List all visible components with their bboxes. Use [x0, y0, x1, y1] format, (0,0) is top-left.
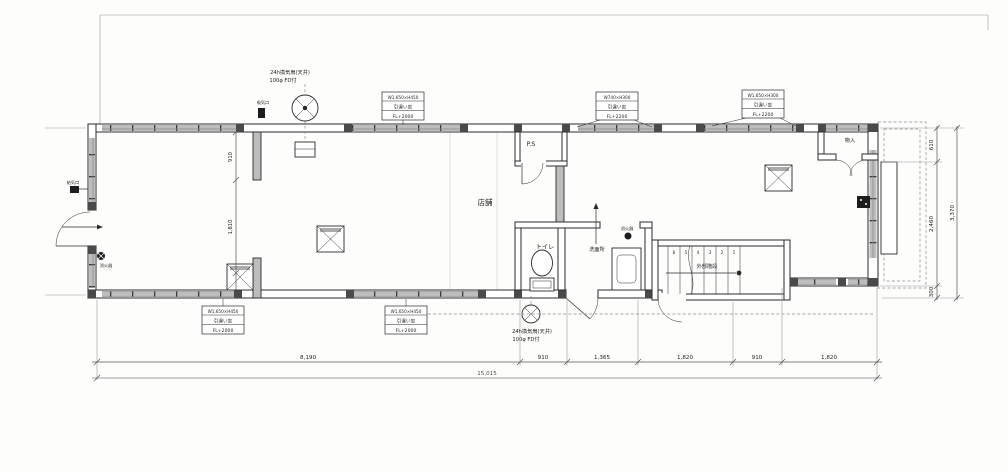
- entry-arrow-icon: [593, 203, 598, 209]
- fire-extinguisher-icon: [625, 233, 632, 240]
- fire-extinguisher-label: 消火器: [621, 225, 634, 232]
- wl-type: 引違い窓: [608, 104, 627, 111]
- wl-fl: FL+2200: [753, 112, 774, 118]
- stair-step-4: 4: [697, 250, 700, 255]
- window-top-5: [826, 125, 870, 131]
- dim-910b: 910: [752, 355, 763, 361]
- entry-door: [56, 212, 103, 246]
- fan-bottom-note-2: 100φ FD付: [512, 335, 539, 343]
- ceiling-fan-top: 24h換気扇(天井) 100φ FD付: [269, 68, 318, 157]
- dim-8190: 8,190: [300, 355, 316, 361]
- dim-1820a: 1,820: [677, 355, 693, 361]
- window-bottom-1: [102, 291, 234, 297]
- stair-step-5: 5: [685, 250, 688, 255]
- toilet-fixture: [532, 250, 553, 276]
- washroom-label: 洗面所: [589, 245, 605, 253]
- window-label-top-center: W1,650×H450 引違い窓 FL+2000: [382, 92, 424, 125]
- fan-top-note-2: 100φ FD付: [269, 76, 296, 84]
- window-top-2: [352, 125, 460, 131]
- stair-step-3: 3: [709, 250, 712, 255]
- supply-vent-label: 給気口: [67, 179, 80, 186]
- dim-1810-interior: 1,810: [228, 220, 234, 235]
- left-wall: [88, 124, 96, 298]
- bottom-wall: [88, 290, 662, 298]
- closet-label: 物入: [845, 136, 855, 144]
- stair-step-6: 6: [673, 250, 676, 255]
- washroom-exterior-door: [566, 298, 598, 319]
- intake-vent-marker: 吸気口: [257, 99, 270, 118]
- fire-extinguisher-left-label: 消火器: [100, 262, 113, 269]
- window-rb-1: [796, 279, 836, 285]
- washbasin: [612, 248, 641, 290]
- wl-size: W740×H300: [604, 95, 631, 100]
- dim-total-width: 15,015: [477, 371, 497, 377]
- fan-top-note-1: 24h換気扇(天井): [270, 68, 310, 76]
- window-top-1: [102, 125, 236, 131]
- window-label-bottom-center: W1,650×H450 引違い窓 FL+2000: [385, 299, 875, 334]
- wl-size: W1,650×H450: [391, 309, 422, 314]
- dim-2460: 2,460: [929, 216, 935, 232]
- distribution-board-icon: [857, 196, 870, 208]
- supply-vent-marker: 給気口: [67, 179, 88, 193]
- dim-300: 300: [929, 286, 935, 297]
- door-arrow-icon: [97, 225, 103, 230]
- stair-direction-dot: [737, 271, 742, 276]
- chase-wall: [556, 166, 564, 222]
- external-stairs: 6 5 4 3 2 1 外部階段: [652, 240, 790, 322]
- dim-1820b: 1,820: [821, 355, 837, 361]
- window-right: [870, 150, 877, 258]
- shop-label: 店舗: [478, 198, 493, 207]
- stairs-label: 外部階段: [697, 262, 718, 270]
- ceiling-fan-bottom: 24h換気扇(天井) 100φ FD付: [512, 296, 552, 343]
- window-label-top-mid: W740×H300 引違い窓 FL+2200: [577, 92, 652, 127]
- window-label-bottom-left: W1,650×H450 引違い窓 FL+2000: [202, 299, 244, 334]
- pipe-space-label: P.S: [527, 141, 536, 148]
- dim-910-interior: 910: [228, 152, 234, 162]
- wl-type: 引違い窓: [394, 104, 413, 111]
- ceiling-symbol-2: [765, 165, 792, 191]
- wl-type: 引違い窓: [754, 102, 773, 109]
- toilet-tank: [530, 278, 554, 291]
- top-wall: [88, 124, 878, 132]
- intake-vent-label: 吸気口: [257, 99, 270, 106]
- wl-type: 引違い窓: [214, 318, 233, 325]
- wall-stub-bottom: [253, 258, 261, 298]
- ceiling-symbol-1: [317, 226, 344, 252]
- toilet-label: トイレ: [536, 244, 555, 251]
- window-top-3: [578, 125, 654, 131]
- wl-fl: FL+2000: [393, 114, 414, 120]
- wl-type: 引違い窓: [397, 318, 416, 325]
- wl-size: W1,650×H450: [388, 95, 419, 100]
- ceiling-symbol-3: [227, 264, 253, 290]
- fan-bottom-note-1: 24h換気扇(天井): [512, 327, 552, 335]
- stair-exterior-door: [658, 300, 682, 322]
- dim-910a: 910: [538, 355, 549, 361]
- fire-extinguisher-left: 消火器: [97, 252, 113, 269]
- floor-plan-page: P.S トイレ 洗面所 消火器 6 5 4 3: [0, 0, 1008, 472]
- window-bottom-2: [354, 291, 478, 297]
- stair-step-2: 2: [721, 250, 724, 255]
- wl-size: W1,650×H450: [208, 309, 239, 314]
- window-left-lower: [89, 252, 95, 288]
- stair-step-1: 1: [733, 250, 736, 255]
- toilet-washroom-block: トイレ 洗面所 消火器: [515, 203, 652, 291]
- bottom-dimensions: 8,190 910 1,365 1,820 910 1,820 15,015: [92, 288, 882, 381]
- right-porch-outline: [878, 122, 926, 288]
- wl-fl: FL+2000: [213, 328, 234, 334]
- window-left: [89, 138, 95, 202]
- dim-total-height: 3,370: [950, 205, 956, 221]
- wl-fl: FL+2000: [396, 328, 417, 334]
- floor-plan-drawing: P.S トイレ 洗面所 消火器 6 5 4 3: [0, 0, 1008, 472]
- wl-fl: FL+2200: [607, 114, 628, 120]
- dim-1365: 1,365: [594, 355, 610, 361]
- wall-stub-top: [253, 132, 261, 180]
- dim-610: 610: [929, 139, 935, 150]
- window-top-4: [702, 125, 796, 131]
- right-bottom-wall: [790, 278, 878, 286]
- wl-size: W1,650×H300: [748, 93, 779, 98]
- window-label-top-right: W1,650×H300 引違い窓 FL+2200: [712, 90, 796, 126]
